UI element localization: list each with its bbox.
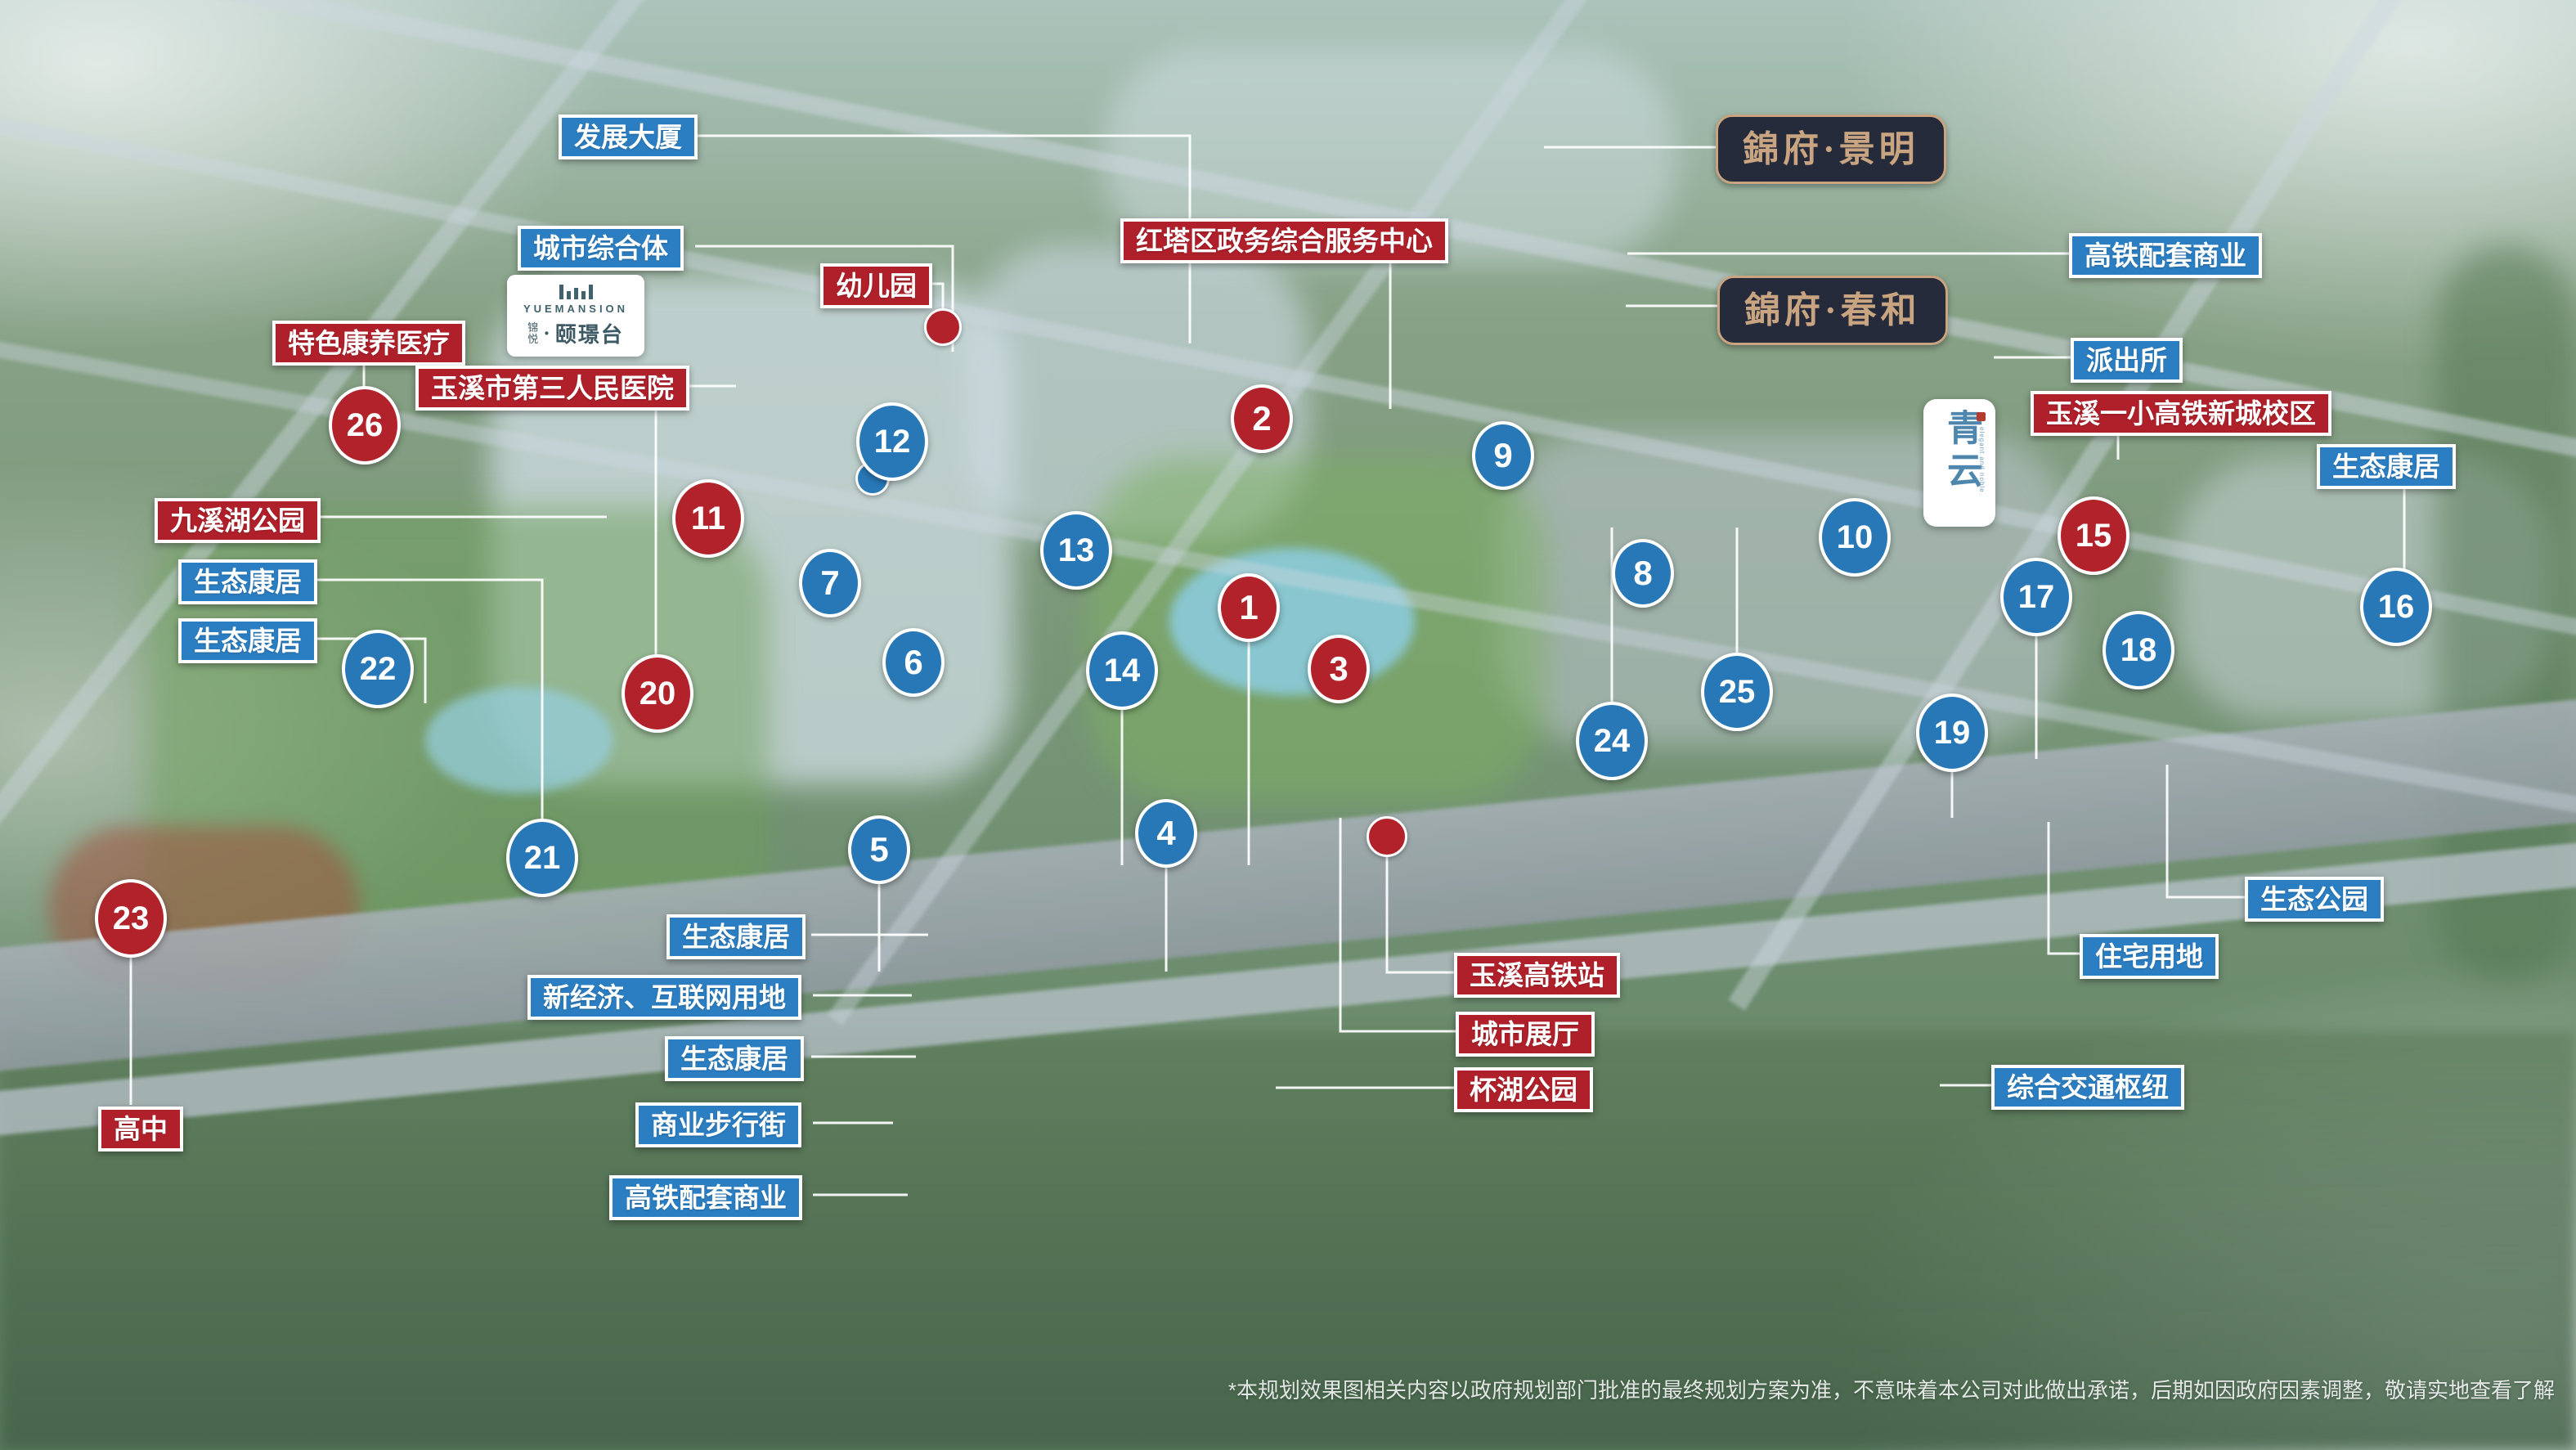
map-marker-21: 21 bbox=[506, 819, 578, 897]
yuemansion-logo-en: YUEMANSION bbox=[523, 303, 628, 315]
map-marker-10: 10 bbox=[1819, 498, 1891, 577]
yuemansion-cn-dot: · bbox=[543, 321, 552, 346]
map-marker-3: 3 bbox=[1308, 635, 1370, 703]
map-marker-5: 5 bbox=[848, 815, 910, 884]
map-marker-18: 18 bbox=[2103, 611, 2174, 689]
yuemansion-bars-icon bbox=[559, 283, 593, 299]
masterplan-map: 1234567891011121314151617181920212223242… bbox=[0, 0, 2576, 1450]
label-shengtai-kangju-bottom-1: 生态康居 bbox=[666, 914, 806, 959]
map-marker-19: 19 bbox=[1916, 694, 1988, 772]
map-marker-17: 17 bbox=[2000, 558, 2072, 636]
label-hongtaqu-zhengwu-zhongxin: 红塔区政务综合服务中心 bbox=[1120, 218, 1448, 263]
qingyun-seal-icon bbox=[1977, 412, 1986, 421]
label-jingfu-jingming: 錦府·景明 bbox=[1716, 114, 1946, 184]
label-paichusuo: 派出所 bbox=[2071, 338, 2183, 383]
map-marker-14: 14 bbox=[1086, 631, 1158, 710]
map-marker-16: 16 bbox=[2360, 568, 2432, 646]
label-chengshi-zongheti: 城市综合体 bbox=[518, 226, 684, 271]
map-marker-23: 23 bbox=[95, 879, 167, 958]
yuemansion-logo-cn: 锦悦·颐璟台 bbox=[527, 318, 624, 348]
disclaimer-text: *本规划效果图相关内容以政府规划部门批准的最终规划方案为准，不意味着本公司对此做… bbox=[1228, 1374, 2555, 1404]
map-marker-25: 25 bbox=[1701, 653, 1773, 731]
map-marker-4: 4 bbox=[1135, 799, 1197, 868]
label-jingfu-chunhe: 錦府·春和 bbox=[1717, 276, 1948, 345]
label-jiuxihu-gongyuan: 九溪湖公园 bbox=[155, 498, 321, 543]
label-youeryuan: 幼儿园 bbox=[820, 263, 932, 308]
qingyun-logo-en: elegant and noble bbox=[1978, 427, 1986, 493]
map-marker-8: 8 bbox=[1612, 539, 1674, 608]
map-marker-26: 26 bbox=[329, 386, 401, 465]
label-zonghe-jiaotong-shuniu: 综合交通枢纽 bbox=[1991, 1065, 2184, 1110]
label-chengshi-zhanting: 城市展厅 bbox=[1456, 1012, 1595, 1057]
label-shengtai-kangju-left-1: 生态康居 bbox=[178, 559, 317, 604]
map-marker-24: 24 bbox=[1576, 702, 1648, 780]
label-yuxi-yixiao-xiaoqu: 玉溪一小高铁新城校区 bbox=[2031, 391, 2331, 436]
map-marker-6: 6 bbox=[882, 628, 945, 697]
label-gaotie-peitao-shangye-bottom: 高铁配套商业 bbox=[609, 1175, 802, 1220]
yuemansion-cn-prefix: 锦悦 bbox=[527, 322, 540, 344]
yuemansion-cn-name: 颐璟台 bbox=[555, 318, 624, 348]
site-dot-kindergarten bbox=[924, 308, 962, 346]
map-marker-7: 7 bbox=[799, 549, 861, 617]
label-shangye-buxingjie: 商业步行街 bbox=[635, 1102, 801, 1147]
label-gaozhong: 高中 bbox=[98, 1107, 183, 1151]
label-zhuzhai-yongdi: 住宅用地 bbox=[2080, 934, 2219, 979]
label-shengtai-kangju-left-2: 生态康居 bbox=[178, 618, 317, 663]
label-tese-kangyang-yiliao: 特色康养医疗 bbox=[272, 321, 465, 366]
map-marker-20: 20 bbox=[622, 654, 693, 733]
map-marker-11: 11 bbox=[672, 479, 744, 558]
map-marker-12: 12 bbox=[856, 402, 928, 481]
yuemansion-logo-card: YUEMANSION 锦悦·颐璟台 bbox=[507, 275, 644, 357]
label-gaotie-peitao-shangye-top: 高铁配套商业 bbox=[2069, 233, 2262, 278]
map-marker-15: 15 bbox=[2058, 496, 2129, 575]
map-marker-2: 2 bbox=[1231, 384, 1293, 453]
map-marker-1: 1 bbox=[1218, 573, 1280, 642]
label-yuxi-disan-renmin-yiyuan: 玉溪市第三人民医院 bbox=[415, 366, 689, 411]
label-yuxi-gaotiezhan: 玉溪高铁站 bbox=[1454, 953, 1620, 998]
label-shengtai-kangju-bottom-2: 生态康居 bbox=[665, 1036, 804, 1081]
qingyun-logo-card: 青云 elegant and noble bbox=[1923, 399, 1995, 527]
label-beihu-gongyuan: 杯湖公园 bbox=[1454, 1067, 1593, 1112]
leader-lines bbox=[0, 0, 2576, 1450]
map-marker-13: 13 bbox=[1040, 511, 1112, 590]
map-marker-22: 22 bbox=[342, 630, 414, 708]
site-dot-station bbox=[1367, 816, 1407, 857]
label-xinjingji-hulianwang-yongdi: 新经济、互联网用地 bbox=[527, 975, 801, 1020]
label-shengtai-kangju-right: 生态康居 bbox=[2317, 444, 2456, 489]
label-fazhan-dasha: 发展大厦 bbox=[559, 114, 698, 159]
map-marker-9: 9 bbox=[1472, 421, 1534, 490]
label-shengtai-gongyuan: 生态公园 bbox=[2245, 877, 2384, 922]
